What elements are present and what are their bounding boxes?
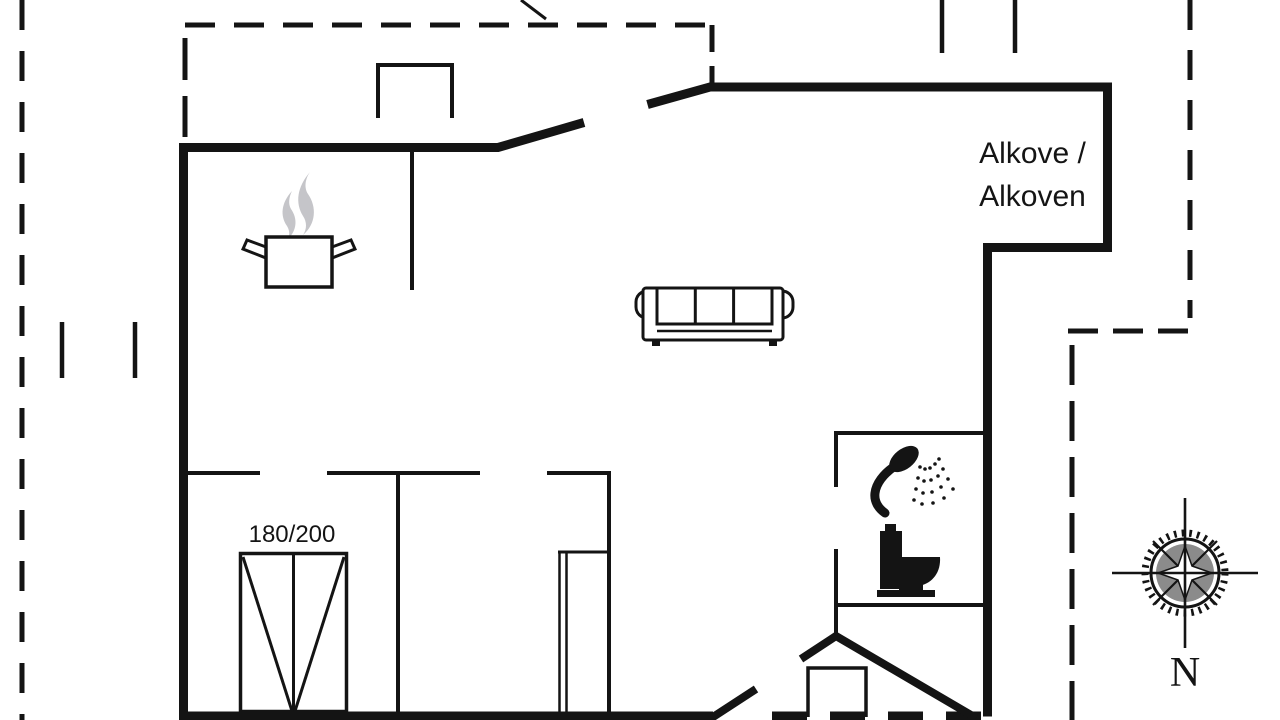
open-door-chevron xyxy=(801,636,976,718)
alcove-label-line2: Alkoven xyxy=(950,175,1115,218)
sofa-foot-left xyxy=(652,340,660,346)
toilet-button xyxy=(885,524,896,531)
wardrobe-icon xyxy=(558,552,611,714)
pot-body xyxy=(266,237,332,287)
steam-wisp-right xyxy=(298,172,314,235)
shower-hose xyxy=(875,466,895,513)
sofa-foot-right xyxy=(769,340,777,346)
compass-north-label: N xyxy=(1150,650,1220,696)
steam-icon xyxy=(283,172,314,240)
vent-chimney-outline xyxy=(378,65,452,118)
double-bed-icon xyxy=(241,554,347,712)
top-diagonal-mark xyxy=(521,0,546,19)
floorplan-canvas: Alkove / Alkoven 180/200 N xyxy=(0,0,1280,720)
sofa-cushions xyxy=(657,288,772,324)
compass-rose-icon xyxy=(1112,498,1258,648)
entry-step-outline xyxy=(808,668,866,717)
pot-handle-left xyxy=(243,240,266,258)
shower-spray-dots xyxy=(912,457,955,506)
alcove-room-label: Alkove / Alkoven xyxy=(950,132,1115,218)
outside-marks xyxy=(62,0,1015,378)
toilet-base xyxy=(877,590,935,597)
alcove-label-line1: Alkove / xyxy=(950,132,1115,175)
sofa-icon xyxy=(636,288,793,346)
terrace-door-leaf xyxy=(710,689,756,719)
floorplan-drawing xyxy=(0,0,1280,720)
doors xyxy=(710,636,976,719)
toilet-bowl xyxy=(902,557,940,586)
toilet-pedestal xyxy=(899,584,923,591)
pot-handle-right xyxy=(332,240,355,258)
cooking-pot-icon xyxy=(243,172,355,287)
steam-wisp-left xyxy=(283,191,296,240)
bed-size-label: 180/200 xyxy=(238,522,346,548)
toilet-tank xyxy=(880,531,902,589)
boundary-dashed-lines xyxy=(22,0,1190,720)
toilet-icon xyxy=(877,524,940,597)
shower-icon xyxy=(875,441,955,513)
